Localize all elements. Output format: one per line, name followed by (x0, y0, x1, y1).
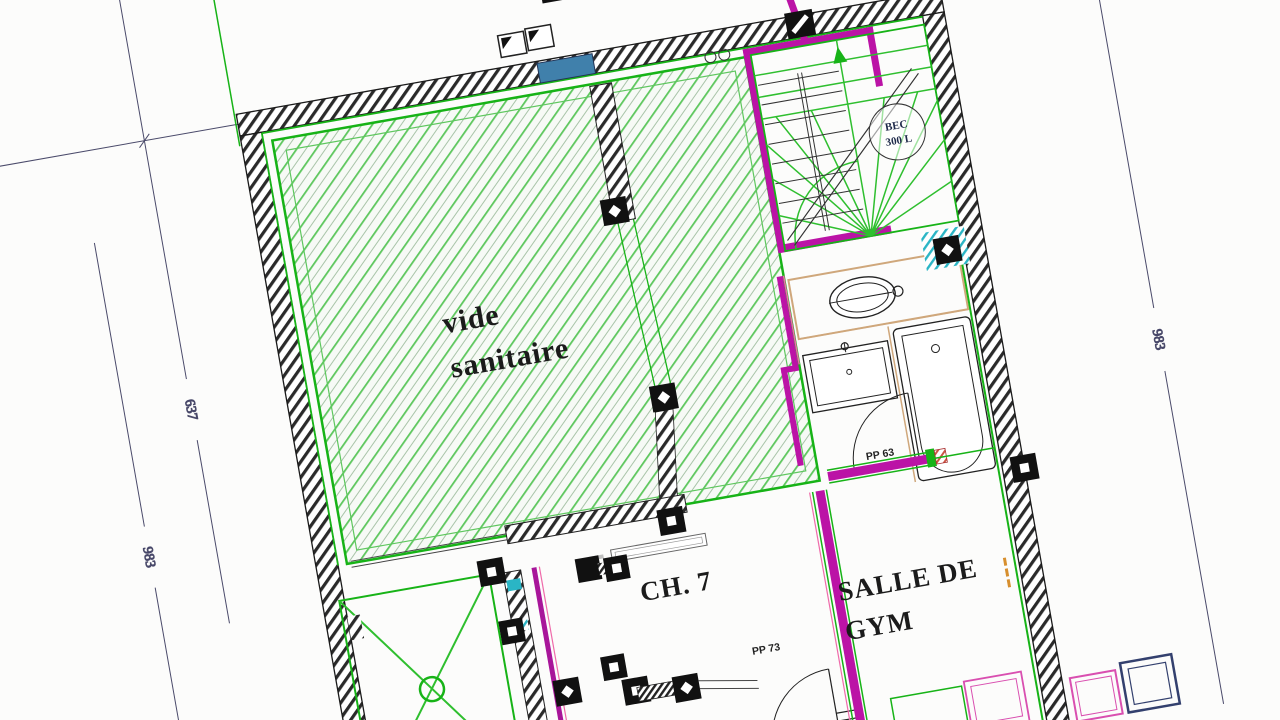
ch7-gym-divider-pink (810, 493, 853, 720)
dim-line-left-inner (110, 0, 229, 623)
illegible-orange-annotation (1003, 557, 1011, 587)
window-symbol-2 (525, 24, 554, 50)
column (932, 235, 962, 265)
dim-label-983-right: 983 (1149, 328, 1167, 351)
room-vide-sanitaire: vide sanitaire (272, 57, 821, 572)
gym-label-1: SALLE DE (836, 553, 980, 607)
detail-square-pink-inner (1076, 676, 1117, 716)
column (1010, 453, 1040, 483)
gym-bottom-box-pink (964, 672, 1030, 720)
window-symbol-1 (498, 31, 527, 57)
gym-right-green-line (959, 243, 1044, 720)
column-top-wall (784, 9, 816, 39)
beam-lines (699, 671, 759, 699)
detail-square-navy-inner (1128, 662, 1172, 704)
column (600, 653, 628, 681)
dim-label-983-left: 983 (139, 546, 157, 569)
floor-plan-drawing: 637 983 983 vide sanitaire (0, 0, 1280, 720)
ch7-bottom-walls (620, 709, 861, 720)
stair-treads-green (751, 25, 959, 252)
dim-line-left-outer (94, 243, 207, 720)
column (649, 382, 679, 412)
ch7-door-label: PP 73 (751, 641, 781, 658)
dim-line-right (1093, 0, 1223, 704)
extension-line-green (202, 0, 240, 146)
x-room-outline (339, 574, 524, 720)
column (552, 677, 582, 707)
column (476, 557, 506, 587)
gym-bottom-box-pink-inner (971, 679, 1023, 720)
gym-label-2: GYM (843, 605, 916, 647)
gym-bottom-box-green (891, 686, 970, 720)
column (600, 196, 630, 226)
column (672, 673, 702, 703)
window-top-blue (537, 54, 596, 83)
ch7-label: CH. 7 (638, 565, 715, 607)
water-heater-circle (865, 99, 930, 164)
column (498, 617, 526, 645)
detail-squares (1069, 654, 1180, 720)
vide-sanitaire-area (272, 57, 819, 564)
detail-square-navy (1120, 654, 1180, 712)
column (575, 555, 603, 583)
dim-tick (137, 134, 151, 148)
dim-label-637: 637 (181, 398, 199, 421)
extension-line-top-left (0, 124, 238, 198)
ch7-door-arc (762, 669, 841, 720)
floor-plan-canvas: 637 983 983 vide sanitaire (0, 0, 1280, 720)
column (603, 554, 631, 582)
column (656, 506, 686, 536)
column-top-edge (540, 0, 588, 3)
